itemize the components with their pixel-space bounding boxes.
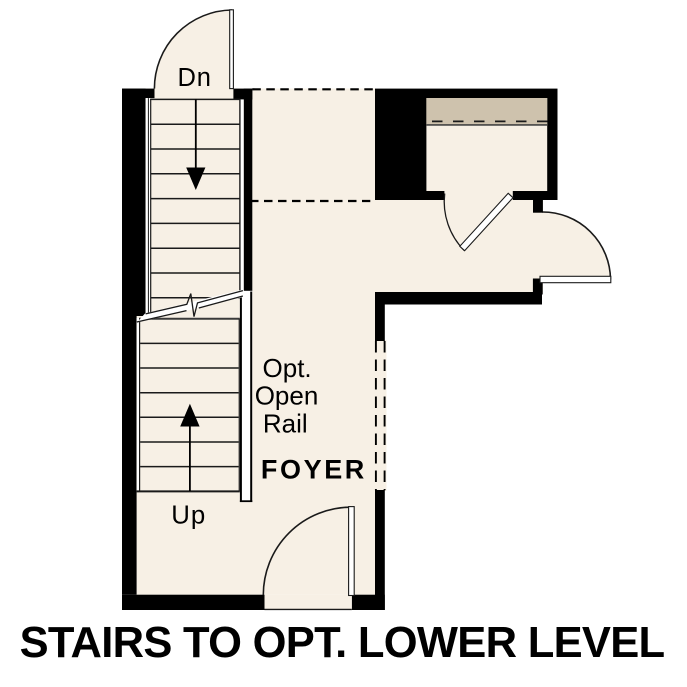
svg-text:Opt.: Opt. bbox=[263, 353, 312, 383]
svg-text:Dn: Dn bbox=[177, 64, 211, 92]
svg-text:Open: Open bbox=[255, 381, 319, 411]
svg-text:STAIRS TO OPT. LOWER LEVEL: STAIRS TO OPT. LOWER LEVEL bbox=[20, 619, 665, 667]
svg-text:FOYER: FOYER bbox=[261, 454, 367, 484]
svg-text:Rail: Rail bbox=[263, 409, 308, 439]
svg-text:Up: Up bbox=[171, 502, 206, 530]
